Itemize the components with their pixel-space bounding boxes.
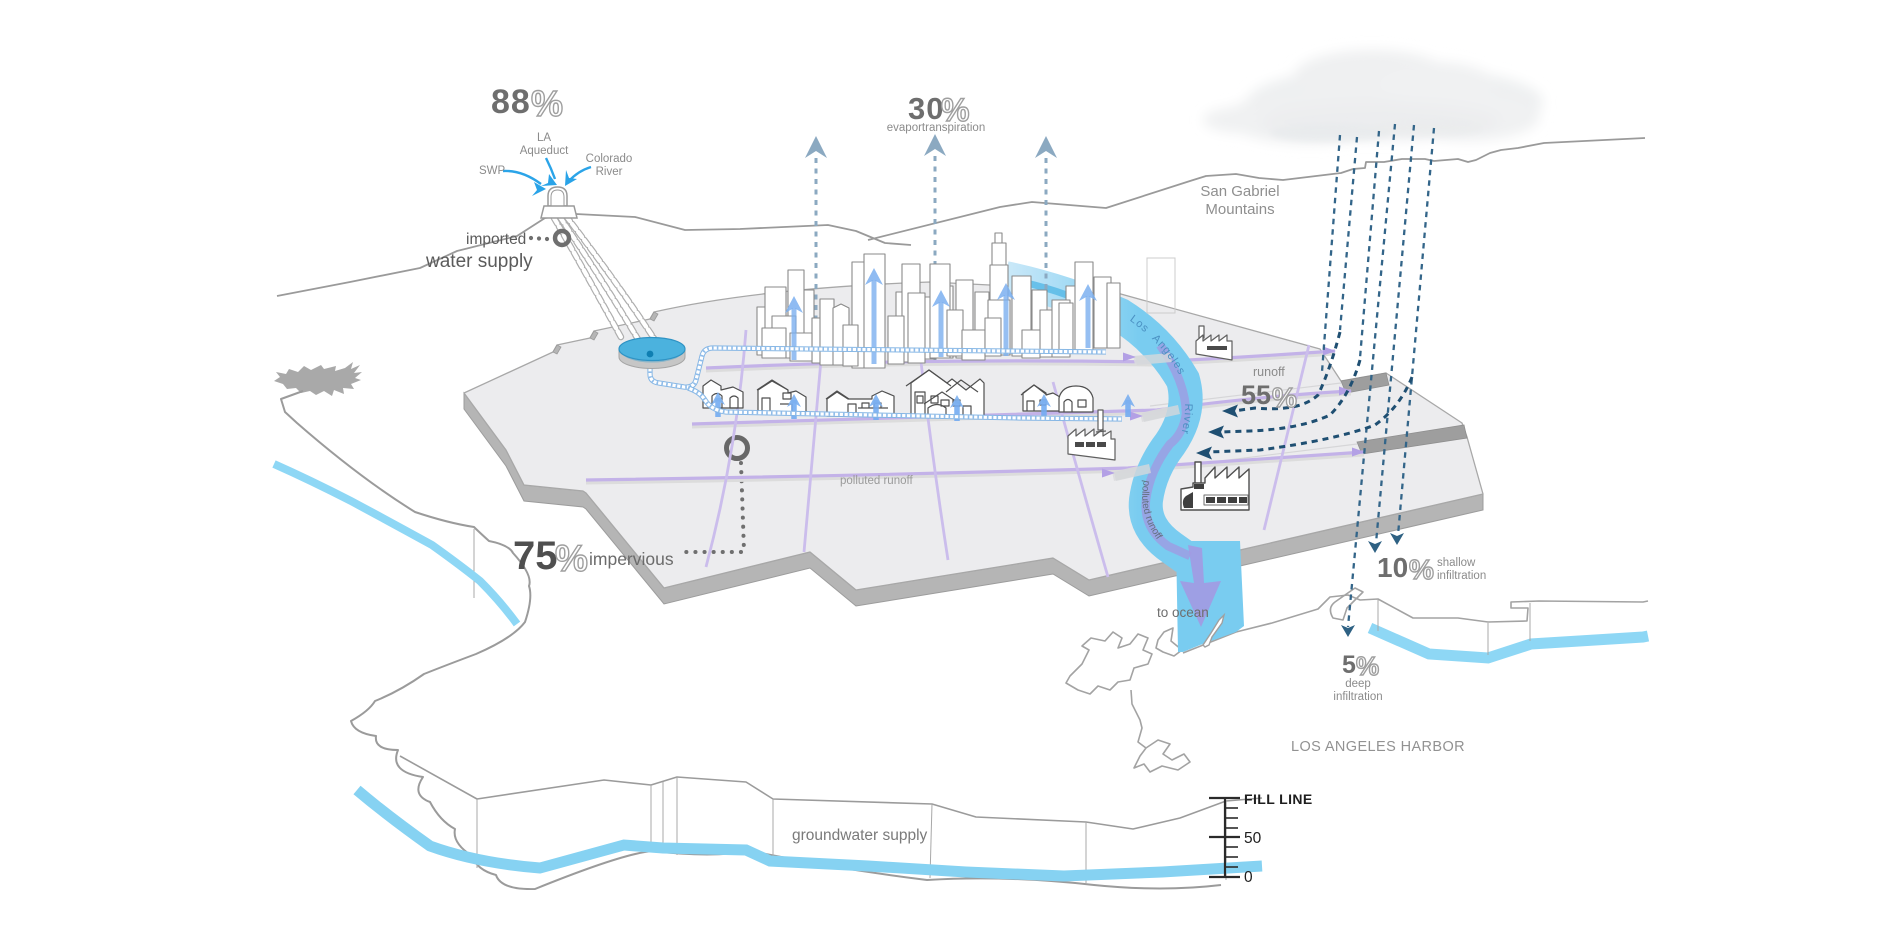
svg-text:%: % [555,538,588,579]
svg-text:runoff: runoff [1253,365,1285,379]
svg-text:%: % [1356,651,1379,681]
svg-text:LOS ANGELES HARBOR: LOS ANGELES HARBOR [1291,739,1465,755]
svg-text:Mountains: Mountains [1205,201,1274,218]
svg-text:5: 5 [1342,651,1356,679]
svg-text:infiltration: infiltration [1333,691,1382,703]
svg-text:shallow: shallow [1437,557,1476,569]
svg-text:San Gabriel: San Gabriel [1200,183,1279,200]
svg-text:River: River [596,166,623,178]
svg-text:88: 88 [491,83,531,121]
svg-text:deep: deep [1345,678,1371,690]
svg-text:30: 30 [908,91,944,126]
svg-text:LA: LA [537,132,551,144]
svg-text:Colorado: Colorado [586,153,633,165]
svg-text:%: % [531,83,563,124]
svg-text:75: 75 [513,534,558,578]
svg-text:%: % [1272,382,1297,413]
svg-text:10: 10 [1377,552,1408,583]
svg-text:55: 55 [1241,380,1271,410]
svg-text:to ocean: to ocean [1157,605,1209,620]
svg-text:infiltration: infiltration [1437,570,1486,582]
svg-text:Aqueduct: Aqueduct [520,145,569,157]
svg-text:evaportranspiration: evaportranspiration [887,122,985,134]
svg-text:SWP: SWP [479,165,506,177]
svg-text:0: 0 [1244,869,1253,886]
svg-text:groundwater supply: groundwater supply [792,827,928,844]
svg-text:water supply: water supply [425,251,533,272]
svg-text:impervious: impervious [589,549,674,569]
svg-text:50: 50 [1244,830,1262,847]
svg-text:imported: imported [466,231,526,248]
svg-text:polluted runoff: polluted runoff [840,475,913,487]
svg-text:FILL LINE: FILL LINE [1244,791,1313,807]
svg-text:%: % [1409,554,1434,585]
